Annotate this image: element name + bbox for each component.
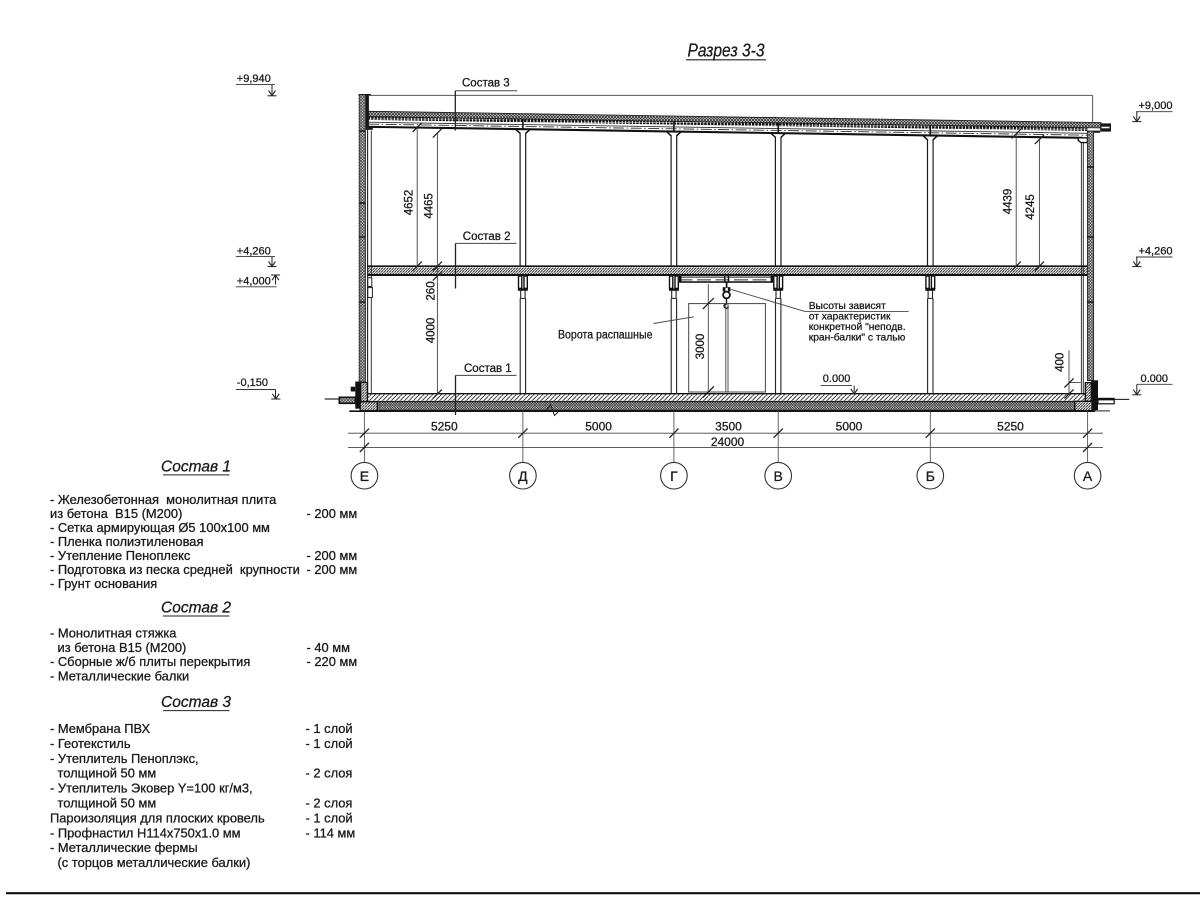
svg-text:Пароизоляция для плоских крове: Пароизоляция для плоских кровель — [50, 810, 265, 825]
svg-text:- Сетка армирующая Ø5 100х100: - Сетка армирующая Ø5 100х100 мм — [50, 520, 270, 535]
svg-text:3500: 3500 — [715, 419, 742, 433]
svg-text:+9,940: +9,940 — [237, 73, 271, 85]
svg-text:- Утеплитель Пеноплэкс,: - Утеплитель Пеноплэкс, — [50, 751, 199, 766]
svg-text:- Пленка полиэтиленовая: - Пленка полиэтиленовая — [50, 534, 203, 549]
svg-text:Д: Д — [518, 468, 528, 484]
svg-text:Состав 3: Состав 3 — [462, 78, 510, 90]
svg-text:- Монолитная стяжка: - Монолитная стяжка — [50, 626, 177, 641]
svg-text:- Сборные ж/б плиты перекрытия: - Сборные ж/б плиты перекрытия — [50, 654, 250, 669]
svg-text:- 200 мм: - 200 мм — [307, 562, 358, 577]
svg-text:- 40 мм: - 40 мм — [307, 640, 351, 655]
svg-text:Разрез 3-3: Разрез 3-3 — [688, 41, 765, 61]
svg-text:- Профнастил Н114х750х1.0 мм: - Профнастил Н114х750х1.0 мм — [50, 825, 241, 840]
svg-text:- Утеплитель Эковер Y=100 кг/м: - Утеплитель Эковер Y=100 кг/м3, — [50, 781, 253, 796]
svg-text:- 1 слой: - 1 слой — [306, 810, 353, 825]
svg-text:из бетона В15 (М200): из бетона В15 (М200) — [50, 506, 182, 521]
svg-text:- 200 мм: - 200 мм — [307, 506, 358, 521]
svg-text:- Геотекстиль: - Геотекстиль — [50, 736, 131, 751]
svg-text:- Подготовка из песка средней: - Подготовка из песка средней крупности — [50, 562, 300, 577]
svg-text:- 2 слоя: - 2 слоя — [306, 796, 353, 811]
svg-text:от характеристик: от характеристик — [809, 311, 891, 322]
svg-text:0.000: 0.000 — [1141, 373, 1169, 385]
svg-text:Состав 2: Состав 2 — [463, 231, 511, 243]
svg-text:- 2 слоя: - 2 слоя — [306, 766, 353, 781]
svg-text:- 220 мм: - 220 мм — [307, 654, 358, 669]
svg-text:3000: 3000 — [695, 334, 707, 360]
svg-text:Состав 3: Состав 3 — [161, 694, 231, 711]
svg-text:Состав 1: Состав 1 — [464, 363, 512, 375]
svg-text:Состав 1: Состав 1 — [161, 458, 231, 475]
svg-text:- Утепление Пеноплекс: - Утепление Пеноплекс — [50, 548, 191, 563]
svg-text:5250: 5250 — [997, 419, 1024, 433]
svg-text:- Металлические фермы: - Металлические фермы — [50, 840, 198, 855]
svg-text:400: 400 — [1055, 353, 1067, 372]
svg-text:5250: 5250 — [431, 419, 458, 433]
svg-text:Г: Г — [670, 468, 678, 484]
svg-text:Б: Б — [926, 468, 935, 484]
svg-text:- 114 мм: - 114 мм — [306, 825, 356, 840]
svg-text:24000: 24000 — [711, 435, 745, 449]
svg-text:+9,000: +9,000 — [1139, 100, 1173, 112]
svg-text:4000: 4000 — [426, 318, 438, 344]
svg-text:- Мембрана ПВХ: - Мембрана ПВХ — [50, 721, 151, 736]
svg-text:конкретной "неподв.: конкретной "неподв. — [809, 322, 906, 333]
svg-text:4439: 4439 — [1003, 189, 1015, 215]
svg-text:Ворота распашные: Ворота распашные — [558, 330, 653, 342]
svg-text:260: 260 — [426, 281, 438, 300]
svg-text:- Железобетонная монолитная п: - Железобетонная монолитная плита — [50, 492, 277, 507]
svg-text:+4,260: +4,260 — [1139, 246, 1173, 258]
svg-text:4652: 4652 — [403, 190, 415, 216]
svg-text:(с торцов металлические балки): (с торцов металлические балки) — [58, 855, 251, 870]
svg-text:-0,150: -0,150 — [237, 377, 268, 389]
svg-text:толщиной 50 мм: толщиной 50 мм — [58, 766, 157, 781]
svg-text:5000: 5000 — [585, 419, 612, 433]
svg-text:4245: 4245 — [1025, 194, 1037, 220]
svg-text:5000: 5000 — [836, 419, 863, 433]
svg-text:4465: 4465 — [424, 193, 436, 219]
svg-text:- 1 слой: - 1 слой — [306, 736, 353, 751]
svg-text:В: В — [774, 468, 783, 484]
svg-text:- Металлические балки: - Металлические балки — [50, 668, 189, 683]
svg-text:толщиной 50 мм: толщиной 50 мм — [58, 796, 157, 811]
svg-text:- Грунт основания: - Грунт основания — [50, 576, 157, 591]
svg-text:0.000: 0.000 — [823, 373, 851, 385]
svg-text:- 1 слой: - 1 слой — [306, 721, 353, 736]
svg-text:Е: Е — [360, 468, 369, 484]
svg-text:Высоты зависят: Высоты зависят — [809, 301, 886, 312]
svg-text:кран-балки" с талью: кран-балки" с талью — [809, 331, 906, 343]
svg-text:+4,260: +4,260 — [237, 246, 271, 258]
svg-text:+4,000: +4,000 — [237, 276, 271, 288]
svg-text:- 200 мм: - 200 мм — [307, 548, 358, 563]
svg-text:Состав 2: Состав 2 — [161, 599, 231, 616]
svg-text:из бетона В15 (М200): из бетона В15 (М200) — [58, 640, 187, 655]
svg-text:А: А — [1083, 468, 1093, 484]
